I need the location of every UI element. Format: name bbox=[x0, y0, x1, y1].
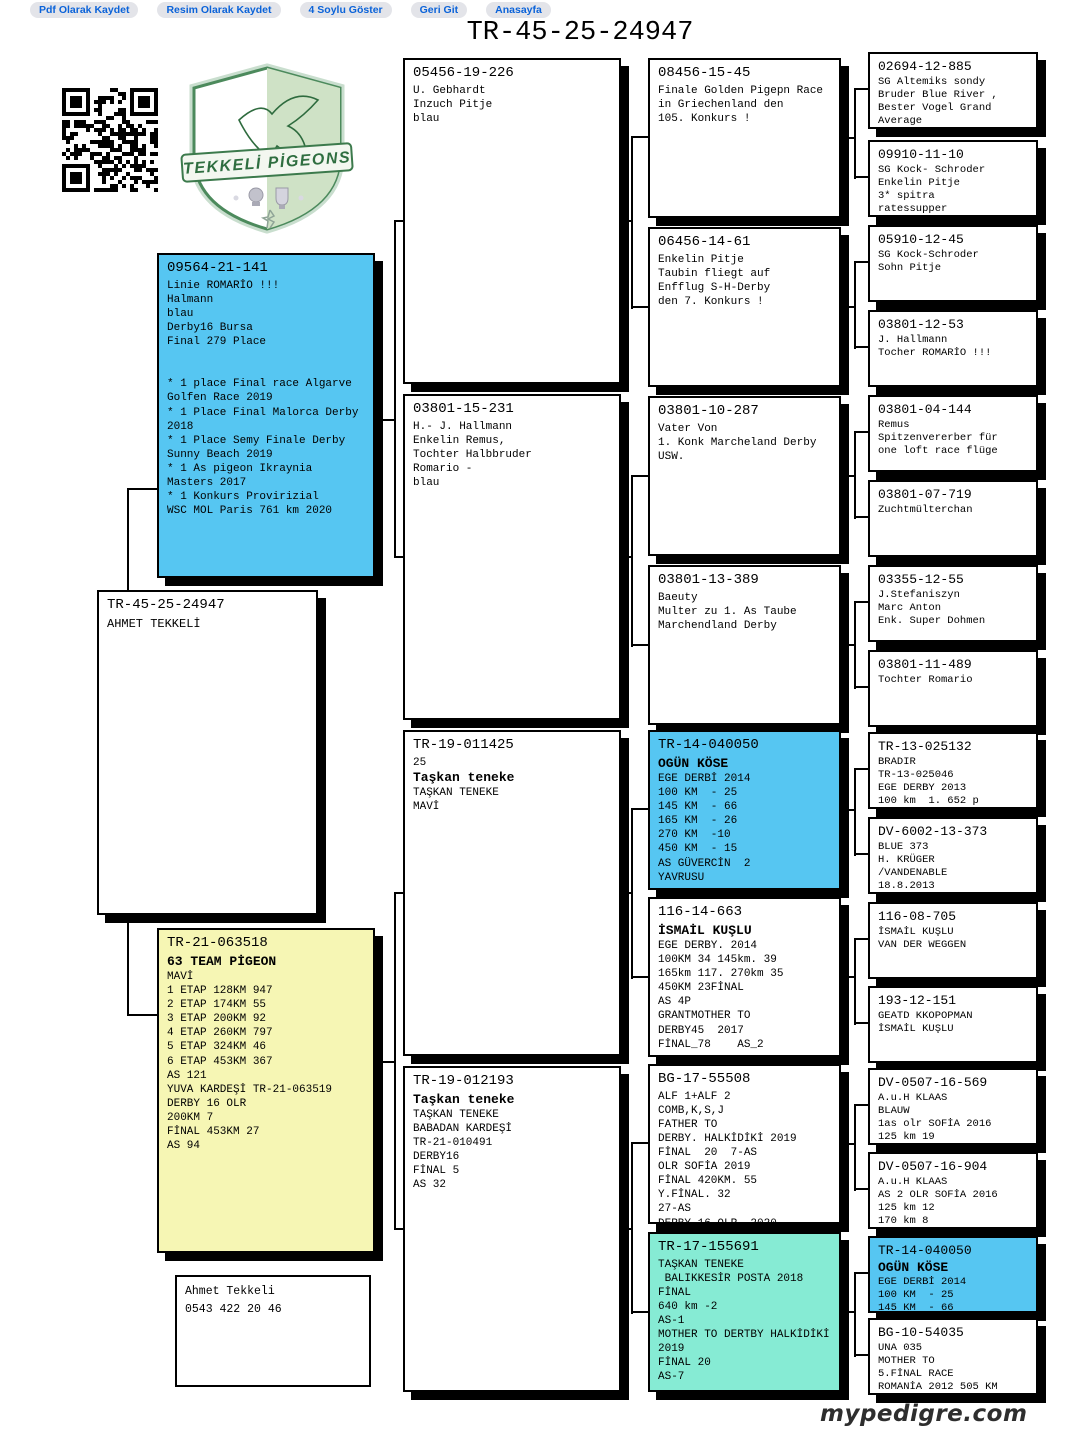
box-details: TAŞKAN TENEKE BALIKKESİR POSTA 2018 FİNA… bbox=[658, 1258, 831, 1385]
nav-button-show-4-gen[interactable]: 4 Soylu Göster bbox=[300, 2, 392, 18]
box-details: BLUE 373 H. KRÜGER /VANDENABLE 18.8.2013 bbox=[878, 841, 1028, 894]
pedigree-box-subject-TR-45-25-24947[interactable]: TR-45-25-24947 AHMET TEKKELİ bbox=[97, 590, 318, 915]
contact-phone: 0543 422 20 46 bbox=[185, 1303, 282, 1316]
nav-button-save-pdf[interactable]: Pdf Olarak Kaydet bbox=[30, 2, 138, 18]
ring-number: 06456-14-61 bbox=[658, 234, 831, 251]
pedigree-box-03801-12-53[interactable]: 03801-12-53 J. Hallmann Tocher ROMARİO !… bbox=[868, 310, 1038, 387]
ring-number: 05456-19-226 bbox=[413, 65, 611, 82]
loft-logo-shield-icon: TEKKELİ PİGEONS bbox=[176, 58, 358, 238]
pedigree-box-03801-15-231[interactable]: 03801-15-231 H.- J. Hallmann Enkelin Rem… bbox=[403, 394, 621, 720]
box-details: A.u.H KLAAS BLAUW 1as olr SOFİA 2016 125… bbox=[878, 1092, 1028, 1145]
ring-number: 03801-10-287 bbox=[658, 403, 831, 420]
pedigree-box-DV-6002-13-373[interactable]: DV-6002-13-373 BLUE 373 H. KRÜGER /VANDE… bbox=[868, 817, 1038, 894]
pedigree-box-TR-14-040050-2[interactable]: TR-14-040050 OGÜN KÖSE EGE DERBİ 2014 10… bbox=[868, 1236, 1038, 1313]
top-nav: Pdf Olarak Kaydet Resim Olarak Kaydet 4 … bbox=[30, 2, 551, 18]
pedigree-box-03801-04-144[interactable]: 03801-04-144 Remus Spitzenvererber für o… bbox=[868, 395, 1038, 472]
pedigree-box-03801-13-389[interactable]: 03801-13-389 Baeuty Multer zu 1. As Taub… bbox=[648, 565, 841, 725]
pedigree-box-03801-11-489[interactable]: 03801-11-489 Tochter Romario bbox=[868, 650, 1038, 727]
ring-number: 08456-15-45 bbox=[658, 65, 831, 82]
ring-number: DV-6002-13-373 bbox=[878, 824, 1028, 840]
pedigree-box-09564-21-141[interactable]: 09564-21-141 Linie ROMARİO !!! Halmann b… bbox=[157, 253, 375, 578]
box-details: EGE DERBİ 2014 100 KM - 25 145 KM - 66 1… bbox=[658, 772, 831, 885]
nav-button-save-image[interactable]: Resim Olarak Kaydet bbox=[157, 2, 280, 18]
nav-button-home[interactable]: Anasayfa bbox=[486, 2, 551, 18]
ring-number: 03801-11-489 bbox=[878, 657, 1028, 673]
pedigree-box-05456-19-226[interactable]: 05456-19-226 U. Gebhardt Inzuch Pitje bl… bbox=[403, 58, 621, 384]
pedigree-box-TR-17-155691[interactable]: TR-17-155691 TAŞKAN TENEKE BALIKKESİR PO… bbox=[648, 1232, 841, 1392]
box-details: BRADIR TR-13-025046 EGE DERBY 2013 100 k… bbox=[878, 756, 1028, 809]
ring-number: 05910-12-45 bbox=[878, 232, 1028, 248]
pedigree-box-03355-12-55[interactable]: 03355-12-55 J.Stefaniszyn Marc Anton Enk… bbox=[868, 565, 1038, 642]
fancier-name: OGÜN KÖSE bbox=[878, 1260, 1028, 1276]
ring-number: 193-12-151 bbox=[878, 993, 1028, 1009]
ring-number: 03801-12-53 bbox=[878, 317, 1028, 333]
pedigree-box-BG-17-55508[interactable]: BG-17-55508 ALF 1+ALF 2 COMB,K,S,J FATHE… bbox=[648, 1064, 841, 1224]
pedigree-box-TR-19-012193[interactable]: TR-19-012193 Taşkan teneke TAŞKAN TENEKE… bbox=[403, 1066, 621, 1392]
box-details: Vater Von 1. Konk Marcheland Derby USW. bbox=[658, 422, 831, 464]
pedigree-box-06456-14-61[interactable]: 06456-14-61 Enkelin Pitje Taubin fliegt … bbox=[648, 227, 841, 387]
box-details: Zuchtmülterchan bbox=[878, 504, 1028, 517]
pedigree-box-03801-10-287[interactable]: 03801-10-287 Vater Von 1. Konk Marchelan… bbox=[648, 396, 841, 556]
fancier-name: Taşkan teneke bbox=[413, 770, 611, 786]
pedigree-box-BG-10-54035[interactable]: BG-10-54035 UNA 035 MOTHER TO 5.FİNAL RA… bbox=[868, 1318, 1038, 1395]
ring-number: 116-08-705 bbox=[878, 909, 1028, 925]
box-details: EGE DERBY. 2014 100KM 34 145km. 39 165km… bbox=[658, 939, 831, 1052]
ring-number: TR-21-063518 bbox=[167, 935, 365, 952]
ring-number: 03355-12-55 bbox=[878, 572, 1028, 588]
box-details: TAŞKAN TENEKE MAVİ bbox=[413, 786, 611, 814]
box-details: U. Gebhardt Inzuch Pitje blau bbox=[413, 84, 611, 126]
ring-number: BG-17-55508 bbox=[658, 1071, 831, 1088]
box-details: MAVİ 1 ETAP 128KM 947 2 ETAP 174KM 55 3 … bbox=[167, 970, 365, 1153]
box-details: SG Altemiks sondy Bruder Blue River , Be… bbox=[878, 76, 1028, 129]
pedigree-box-TR-19-011425[interactable]: TR-19-011425 25 Taşkan teneke TAŞKAN TEN… bbox=[403, 730, 621, 1056]
page-title: TR-45-25-24947 bbox=[120, 18, 1040, 48]
box-details: J. Hallmann Tocher ROMARİO !!! bbox=[878, 334, 1028, 360]
contact-box: Ahmet Tekkeli 0543 422 20 46 bbox=[175, 1275, 371, 1387]
box-details: UNA 035 MOTHER TO 5.FİNAL RACE ROMANİA 2… bbox=[878, 1342, 1028, 1395]
ring-number: 02694-12-885 bbox=[878, 59, 1028, 75]
box-details: Linie ROMARİO !!! Halmann blau Derby16 B… bbox=[167, 279, 365, 518]
ring-number: TR-14-040050 bbox=[878, 1243, 1028, 1259]
pedigree-box-DV-0507-16-904[interactable]: DV-0507-16-904 A.u.H KLAAS AS 2 OLR SOFİ… bbox=[868, 1152, 1038, 1229]
pedigree-box-03801-07-719[interactable]: 03801-07-719 Zuchtmülterchan bbox=[868, 480, 1038, 557]
pedigree-box-TR-13-025132[interactable]: TR-13-025132 BRADIR TR-13-025046 EGE DER… bbox=[868, 732, 1038, 809]
ring-number: TR-19-011425 bbox=[413, 737, 611, 754]
ring-number: TR-19-012193 bbox=[413, 1073, 611, 1090]
box-details: Finale Golden Pigepn Race in Griechenlan… bbox=[658, 84, 831, 126]
box-details: GEATD KKOPOPMAN İSMAİL KUŞLU bbox=[878, 1010, 1028, 1036]
box-details: Enkelin Pitje Taubin fliegt auf Enfflug … bbox=[658, 253, 831, 309]
box-details: ALF 1+ALF 2 COMB,K,S,J FATHER TO DERBY. … bbox=[658, 1090, 831, 1224]
box-details: SG Kock-Schroder Sohn Pitje bbox=[878, 249, 1028, 275]
fancier-name: Taşkan teneke bbox=[413, 1092, 611, 1108]
pedigree-box-TR-14-040050[interactable]: TR-14-040050 OGÜN KÖSE EGE DERBİ 2014 10… bbox=[648, 730, 841, 890]
pedigree-box-DV-0507-16-569[interactable]: DV-0507-16-569 A.u.H KLAAS BLAUW 1as olr… bbox=[868, 1068, 1038, 1145]
box-details: J.Stefaniszyn Marc Anton Enk. Super Dohm… bbox=[878, 589, 1028, 628]
box-details: Baeuty Multer zu 1. As Taube Marchendlan… bbox=[658, 591, 831, 633]
pedigree-box-TR-21-063518[interactable]: TR-21-063518 63 TEAM PİGEON MAVİ 1 ETAP … bbox=[157, 928, 375, 1253]
nav-button-go-back[interactable]: Geri Git bbox=[411, 2, 468, 18]
box-details: EGE DERBİ 2014 100 KM - 25 145 KM - 66 bbox=[878, 1276, 1028, 1313]
ring-number: 03801-15-231 bbox=[413, 401, 611, 418]
fancier-name: İSMAİL KUŞLU bbox=[658, 923, 831, 939]
box-details: SG Kock- Schroder Enkelin Pitje 3* spitr… bbox=[878, 164, 1028, 217]
box-details: Tochter Romario bbox=[878, 674, 1028, 687]
pedigree-box-116-08-705[interactable]: 116-08-705 İSMAİL KUŞLU VAN DER WEGGEN bbox=[868, 902, 1038, 979]
fancier-name: 63 TEAM PİGEON bbox=[167, 954, 365, 970]
ring-number: TR-14-040050 bbox=[658, 737, 831, 754]
owner-name: AHMET TEKKELİ bbox=[107, 616, 308, 632]
box-details: İSMAİL KUŞLU VAN DER WEGGEN bbox=[878, 926, 1028, 952]
ring-number: 116-14-663 bbox=[658, 904, 831, 921]
ring-number: DV-0507-16-904 bbox=[878, 1159, 1028, 1175]
pedigree-box-05910-12-45[interactable]: 05910-12-45 SG Kock-Schroder Sohn Pitje bbox=[868, 225, 1038, 302]
pedigree-box-116-14-663[interactable]: 116-14-663 İSMAİL KUŞLU EGE DERBY. 2014 … bbox=[648, 897, 841, 1057]
pedigree-page: Pdf Olarak Kaydet Resim Olarak Kaydet 4 … bbox=[0, 0, 1085, 1451]
ring-number: 03801-04-144 bbox=[878, 402, 1028, 418]
ring-number: DV-0507-16-569 bbox=[878, 1075, 1028, 1091]
qr-code-icon bbox=[62, 88, 158, 192]
contact-name: Ahmet Tekkeli bbox=[185, 1285, 275, 1298]
ring-number: TR-17-155691 bbox=[658, 1239, 831, 1256]
pedigree-box-08456-15-45[interactable]: 08456-15-45 Finale Golden Pigepn Race in… bbox=[648, 58, 841, 218]
ring-number: TR-13-025132 bbox=[878, 739, 1028, 755]
fancier-name: OGÜN KÖSE bbox=[658, 756, 831, 772]
pedigree-box-09910-11-10[interactable]: 09910-11-10 SG Kock- Schroder Enkelin Pi… bbox=[868, 140, 1038, 217]
pedigree-box-193-12-151[interactable]: 193-12-151 GEATD KKOPOPMAN İSMAİL KUŞLU bbox=[868, 986, 1038, 1063]
pedigree-box-02694-12-885[interactable]: 02694-12-885 SG Altemiks sondy Bruder Bl… bbox=[868, 52, 1038, 129]
ring-number: TR-45-25-24947 bbox=[107, 597, 308, 614]
box-note: 25 bbox=[413, 756, 611, 770]
box-details: A.u.H KLAAS AS 2 OLR SOFİA 2016 125 km 1… bbox=[878, 1176, 1028, 1229]
ring-number: 09564-21-141 bbox=[167, 260, 365, 277]
ring-number: BG-10-54035 bbox=[878, 1325, 1028, 1341]
site-watermark: mypedigre.com bbox=[820, 1401, 1027, 1427]
box-details: TAŞKAN TENEKE BABADAN KARDEŞİ TR-21-0104… bbox=[413, 1108, 611, 1192]
ring-number: 03801-07-719 bbox=[878, 487, 1028, 503]
ring-number: 09910-11-10 bbox=[878, 147, 1028, 163]
box-details: Remus Spitzenvererber für one loft race … bbox=[878, 419, 1028, 458]
box-details: H.- J. Hallmann Enkelin Remus, Tochter H… bbox=[413, 420, 611, 490]
ring-number: 03801-13-389 bbox=[658, 572, 831, 589]
